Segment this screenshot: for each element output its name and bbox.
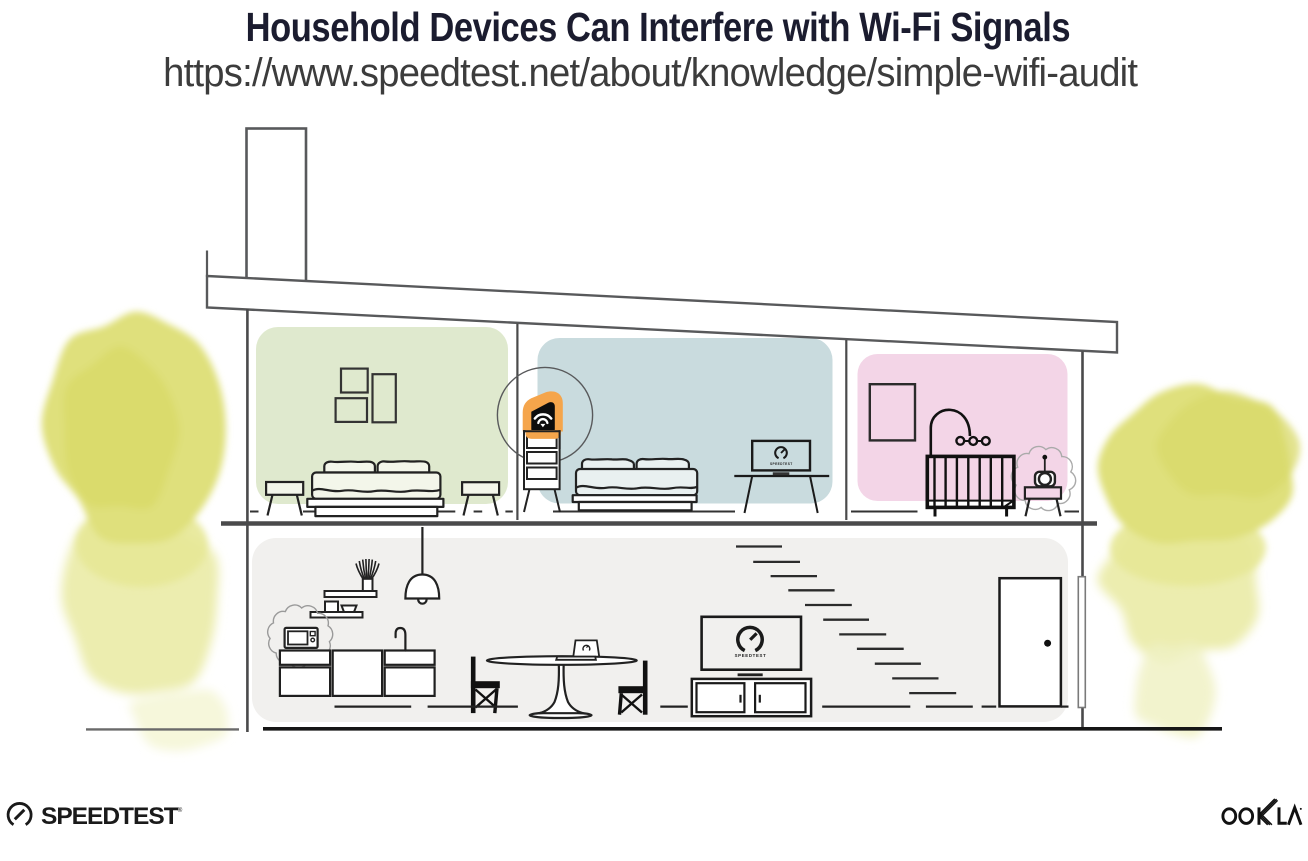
- svg-text:®: ®: [178, 806, 183, 814]
- svg-text:SPEEDTEST: SPEEDTEST: [41, 803, 179, 830]
- svg-text:SPEEDTEST: SPEEDTEST: [735, 653, 767, 658]
- svg-text:SPEEDTEST: SPEEDTEST: [770, 462, 793, 466]
